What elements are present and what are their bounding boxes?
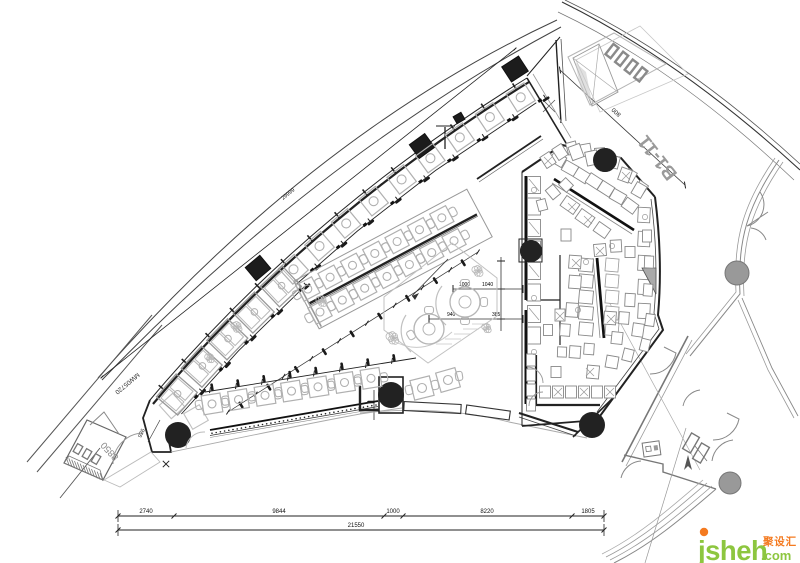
svg-text:1040: 1040 bbox=[482, 282, 493, 288]
svg-text:2740: 2740 bbox=[139, 509, 153, 515]
svg-text:8220: 8220 bbox=[480, 509, 494, 515]
svg-text:聚设汇: 聚设汇 bbox=[762, 535, 797, 548]
svg-text:.com: .com bbox=[761, 548, 791, 563]
svg-text:1805: 1805 bbox=[581, 509, 595, 515]
svg-text:9844: 9844 bbox=[272, 509, 286, 515]
svg-text:1000: 1000 bbox=[386, 509, 400, 515]
svg-text:21550: 21550 bbox=[348, 523, 365, 529]
svg-text:385: 385 bbox=[492, 312, 501, 318]
svg-text:jsheh: jsheh bbox=[697, 535, 767, 563]
